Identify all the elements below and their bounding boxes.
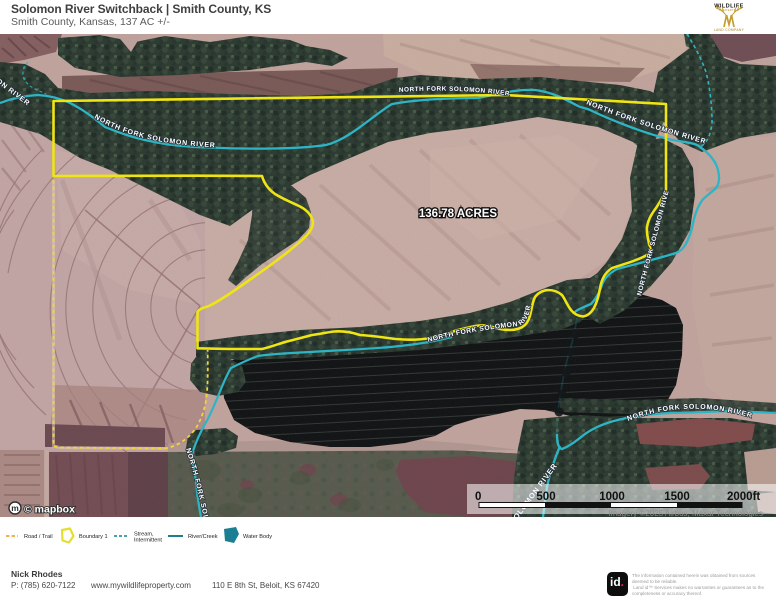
svg-text:m: m [11,503,19,513]
svg-text:Imagery ©2025 Airbus, Maxar Te: Imagery ©2025 Airbus, Maxar Technologies [608,509,763,517]
svg-text:500: 500 [536,491,555,503]
svg-text:1500: 1500 [664,491,690,503]
svg-text:1000: 1000 [599,491,625,503]
svg-text:0: 0 [475,491,481,503]
svg-text:Intermittent: Intermittent [134,538,162,544]
svg-text:LAND COMPANY: LAND COMPANY [714,28,745,32]
svg-text:Water Body: Water Body [243,534,272,540]
svg-text:© mapbox: © mapbox [24,504,75,516]
svg-text:2000ft: 2000ft [727,491,760,503]
svg-text:River/Creek: River/Creek [188,534,218,540]
svg-text:Road / Trail: Road / Trail [24,534,53,540]
svg-text:136.78 ACRES: 136.78 ACRES [419,208,498,220]
svg-text:Boundary 1: Boundary 1 [79,534,108,540]
